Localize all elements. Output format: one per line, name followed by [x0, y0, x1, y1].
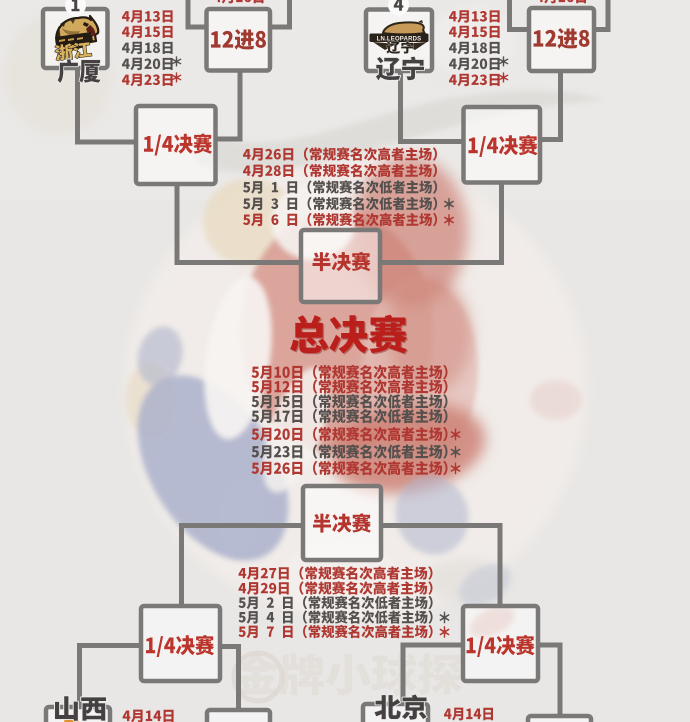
- svg-text:LN.LEOPARDS: LN.LEOPARDS: [377, 37, 422, 43]
